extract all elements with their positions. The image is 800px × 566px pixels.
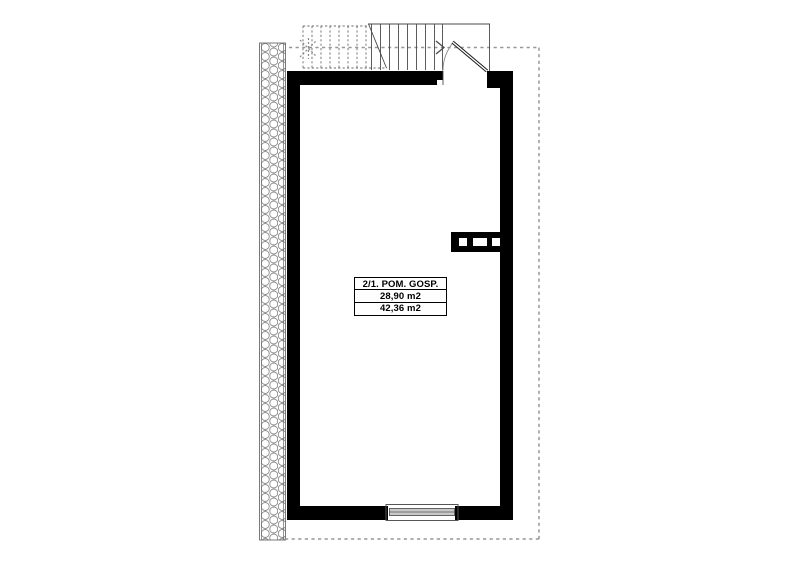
chimney-flue [451,232,500,252]
insulation-hatch-strip [260,43,286,540]
wall-bottom-left-segment [287,506,388,520]
floor-plan-page: 2/1. POM. GOSP. 28,90 m2 42,36 m2 [0,0,800,566]
wall-left [287,71,300,520]
room-label-table: 2/1. POM. GOSP. 28,90 m2 42,36 m2 [354,277,447,316]
wall-bottom-right-segment [455,506,513,520]
wall-right [500,71,513,520]
room-area-gross-label: 42,36 m2 [354,302,447,316]
door-jamb-block [437,71,443,80]
door-swing [443,42,487,85]
window-symbol [386,505,458,521]
room-name-label: 2/1. POM. GOSP. [354,277,447,291]
wall-top-left-segment [287,71,437,85]
